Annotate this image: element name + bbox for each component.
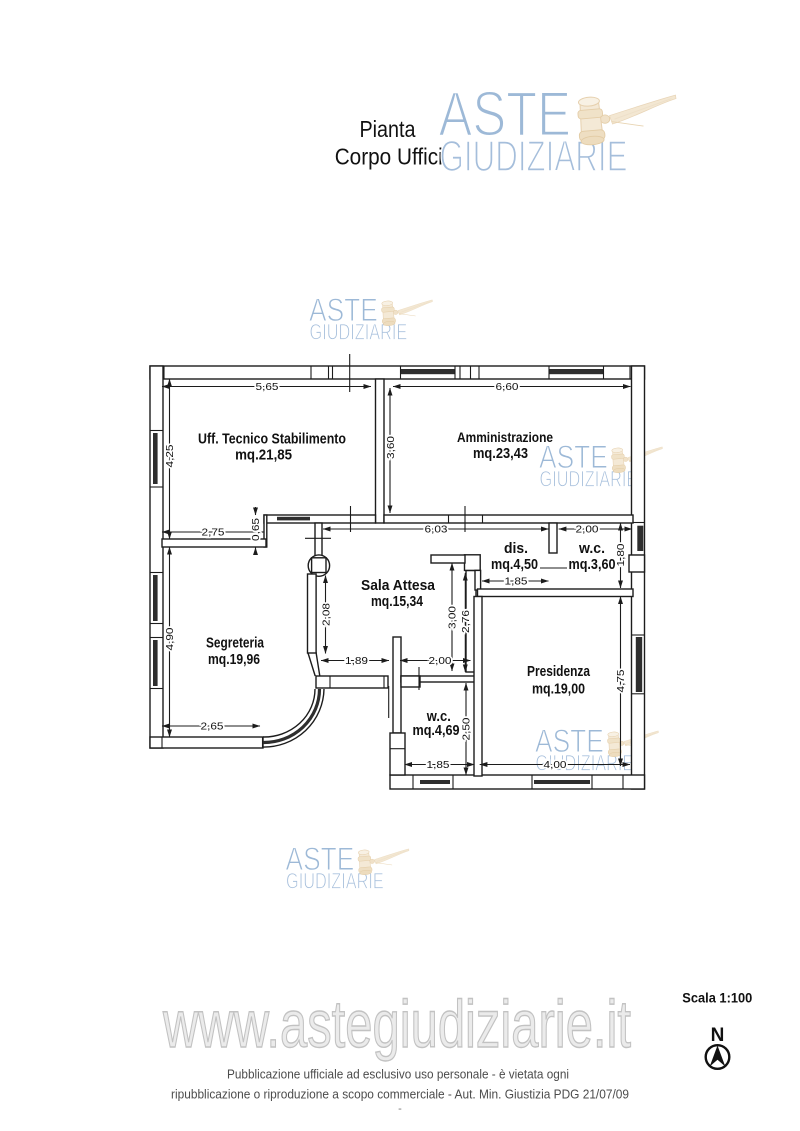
svg-text:4,75: 4,75 — [615, 669, 627, 692]
svg-text:mq.4,50: mq.4,50 — [491, 556, 538, 573]
svg-text:4,90: 4,90 — [164, 627, 176, 650]
svg-text:mq.19,96: mq.19,96 — [208, 651, 260, 668]
svg-text:Presidenza: Presidenza — [527, 663, 591, 680]
svg-text:3,00: 3,00 — [447, 606, 459, 629]
svg-text:dis.: dis. — [504, 540, 528, 557]
svg-text:Uff. Tecnico Stabilimento: Uff. Tecnico Stabilimento — [198, 431, 346, 448]
svg-text:2,50: 2,50 — [461, 717, 473, 740]
svg-text:mq.23,43: mq.23,43 — [473, 445, 528, 462]
svg-text:mq.3,60: mq.3,60 — [569, 556, 616, 573]
svg-text:N: N — [711, 1025, 725, 1046]
svg-text:www.astegiudiziarie.it: www.astegiudiziarie.it — [162, 987, 631, 1062]
svg-text:mq.19,00: mq.19,00 — [532, 681, 585, 698]
svg-text:Pubblicazione ufficiale ad esc: Pubblicazione ufficiale ad esclusivo uso… — [227, 1067, 569, 1082]
svg-text:2,08: 2,08 — [321, 603, 333, 626]
svg-text:6,03: 6,03 — [425, 524, 448, 536]
svg-text:3,60: 3,60 — [385, 436, 397, 459]
svg-text:1,85: 1,85 — [427, 759, 450, 771]
svg-text:2,00: 2,00 — [429, 655, 452, 667]
svg-text:2,00: 2,00 — [576, 524, 599, 536]
svg-text:Pianta: Pianta — [360, 116, 416, 142]
svg-text:mq.21,85: mq.21,85 — [235, 447, 292, 464]
svg-text:0,65: 0,65 — [250, 518, 262, 541]
svg-text:4,00: 4,00 — [544, 759, 567, 771]
svg-text:ripubblicazione o riproduzione: ripubblicazione o riproduzione a scopo c… — [171, 1087, 629, 1102]
svg-text:2,75: 2,75 — [202, 527, 225, 539]
svg-text:Sala Attesa: Sala Attesa — [361, 577, 436, 594]
svg-text:mq.4,69: mq.4,69 — [413, 722, 460, 739]
svg-text:2,65: 2,65 — [201, 721, 224, 733]
svg-text:Scala 1:100: Scala 1:100 — [682, 990, 752, 1006]
svg-text:4,25: 4,25 — [164, 444, 176, 467]
svg-text:-: - — [398, 1103, 402, 1115]
svg-text:Amministrazione: Amministrazione — [457, 429, 553, 445]
svg-text:Segreteria: Segreteria — [206, 635, 265, 652]
svg-text:1,80: 1,80 — [615, 543, 627, 566]
svg-text:w.c.: w.c. — [578, 540, 605, 557]
svg-text:5,65: 5,65 — [256, 381, 279, 393]
svg-text:mq.15,34: mq.15,34 — [371, 593, 424, 610]
svg-text:6,60: 6,60 — [496, 381, 519, 393]
svg-text:2,76: 2,76 — [460, 610, 472, 633]
svg-text:1,85: 1,85 — [505, 576, 528, 588]
svg-text:Corpo Uffici: Corpo Uffici — [335, 144, 443, 170]
svg-text:1,89: 1,89 — [345, 655, 368, 667]
